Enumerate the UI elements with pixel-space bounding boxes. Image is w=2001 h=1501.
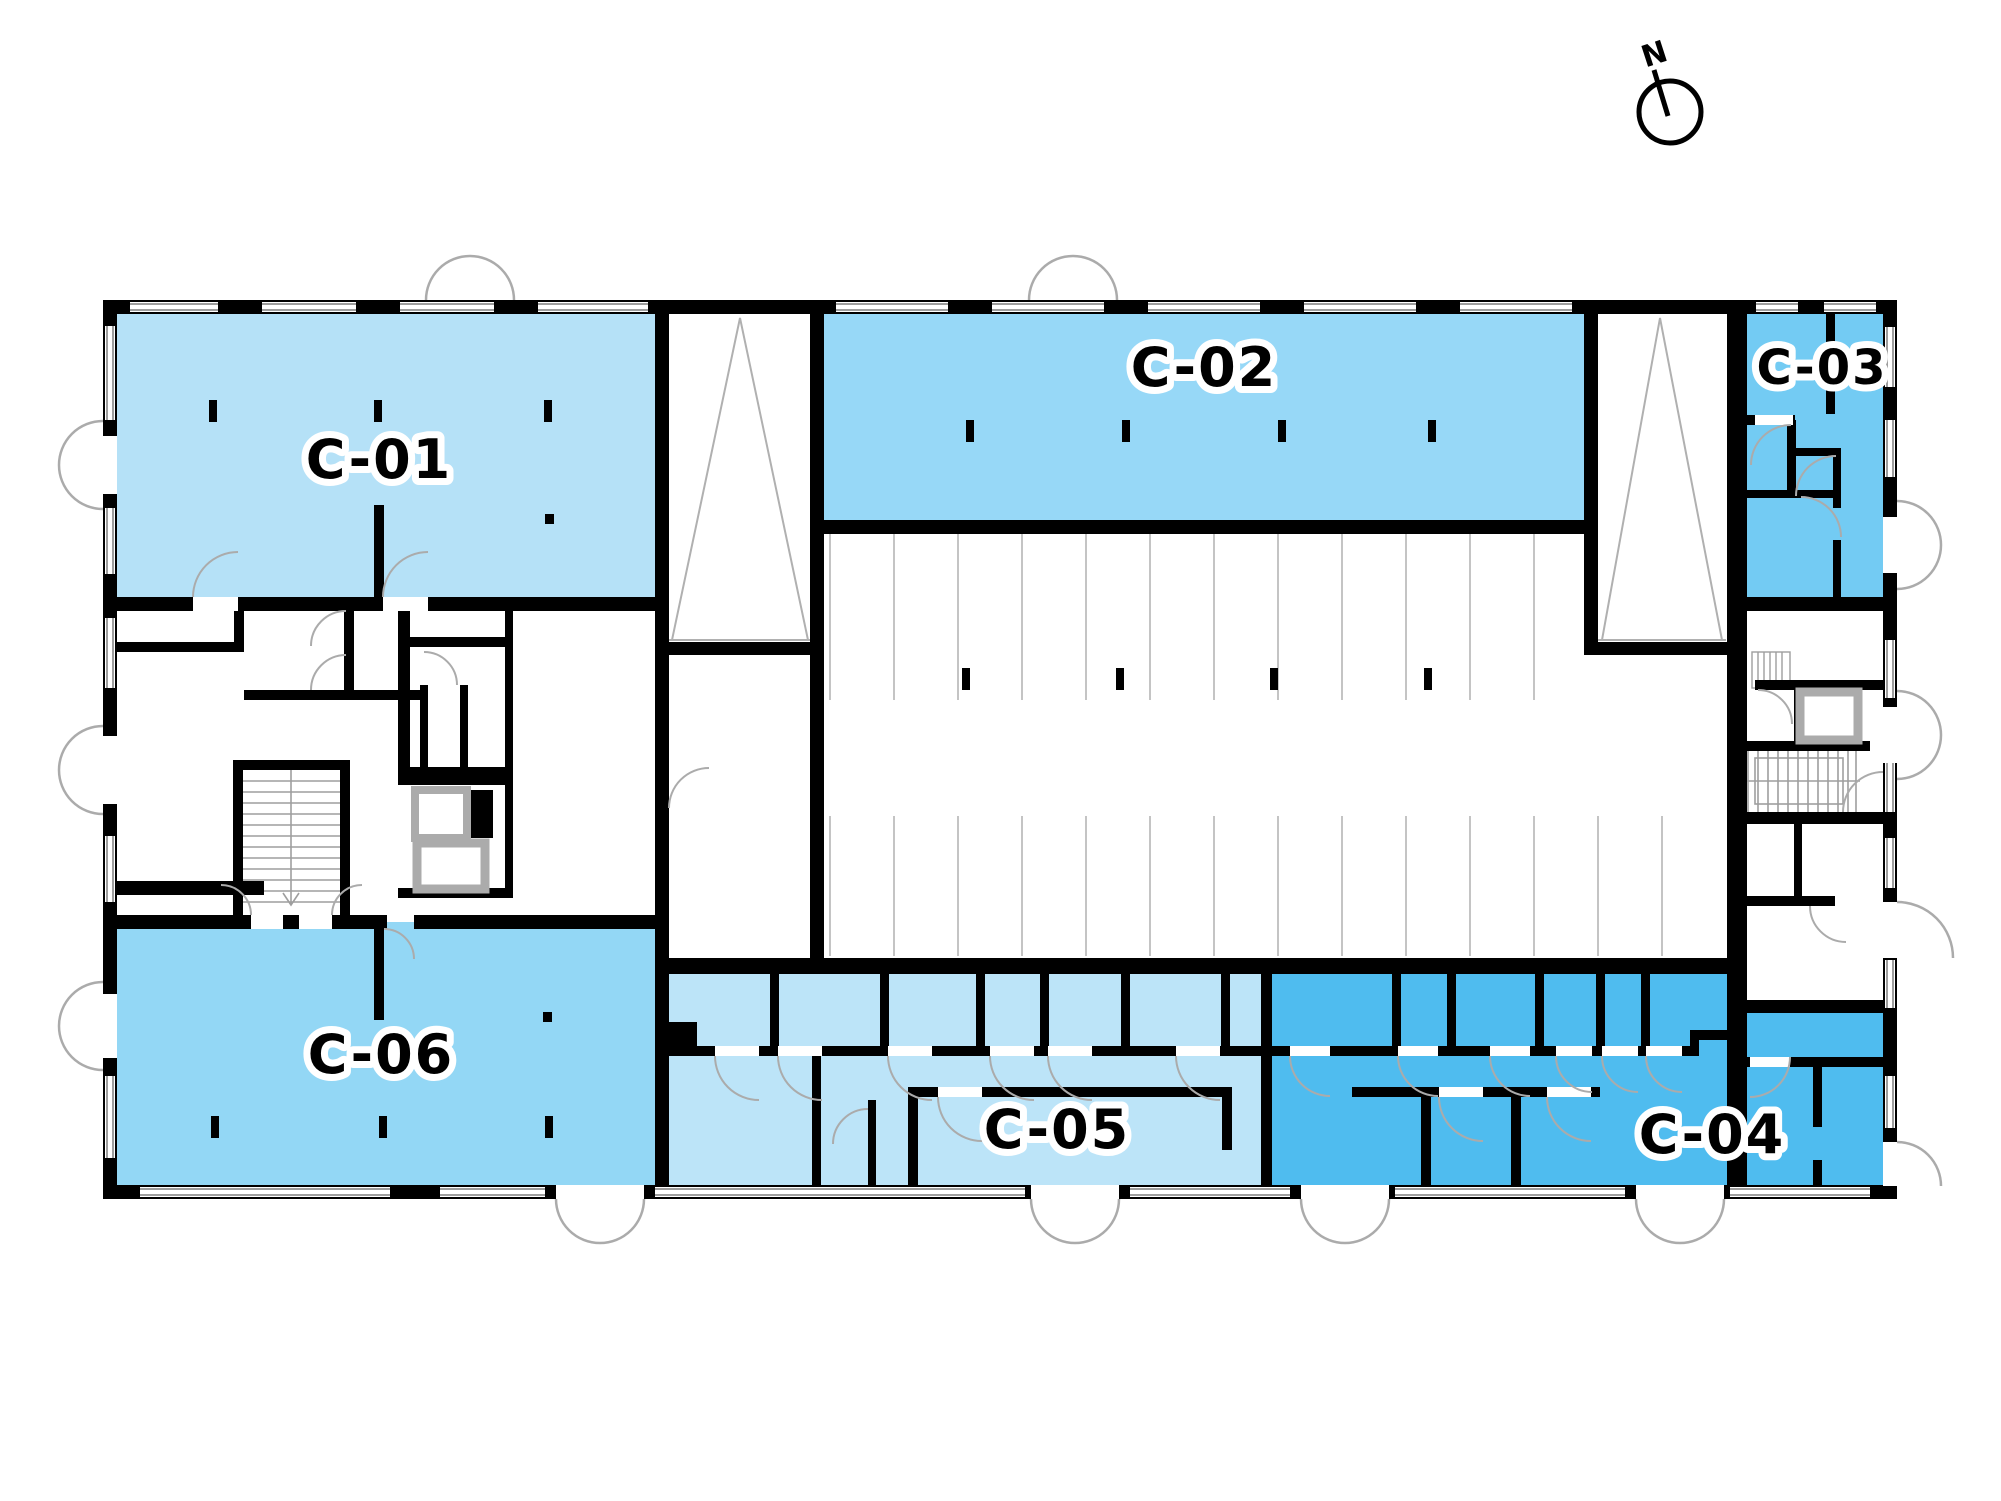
stairwell-right: [1740, 751, 1860, 812]
elevator-right: [1800, 692, 1858, 740]
unit-c05-region[interactable]: [669, 974, 1261, 1185]
ramp-right: [1602, 318, 1722, 640]
wall-c03-bottom: [1727, 597, 1897, 611]
floor-plan-drawing: C-01 C-02 C-03 C-04 C-05 C-06 N: [0, 0, 2001, 1501]
floor-plan-canvas: C-01 C-02 C-03 C-04 C-05 C-06 N: [0, 0, 2001, 1501]
compass-circle: [1639, 81, 1701, 143]
unit-c01-label[interactable]: C-01: [306, 428, 452, 491]
wall-parking-bottom: [655, 958, 1747, 974]
ramp-left: [672, 318, 808, 640]
unit-c04-label[interactable]: C-04: [1639, 1103, 1785, 1166]
elevator-left-2: [417, 843, 485, 889]
unit-c05-fill[interactable]: [669, 974, 1261, 1185]
compass: N: [1637, 34, 1701, 143]
wall-ramp-left-base: [655, 642, 824, 655]
wall-core-left: [655, 300, 669, 1185]
wall-c02-bottom: [810, 520, 1598, 534]
elevator-left-1: [415, 790, 467, 838]
north-needle-icon: [1654, 70, 1668, 116]
unit-c05-label[interactable]: C-05: [984, 1098, 1130, 1161]
parking-stall-lines-bottom: [830, 816, 1662, 956]
unit-c02-label[interactable]: C-02: [1131, 336, 1277, 399]
unit-c03-label[interactable]: C-03: [1756, 340, 1887, 396]
wall-c02-right: [1584, 300, 1598, 655]
wall-parking-left: [810, 300, 824, 972]
wall-ramp-right-base: [1584, 642, 1747, 655]
north-label: N: [1637, 34, 1672, 75]
elevators: [415, 692, 1858, 889]
unit-c06-label[interactable]: C-06: [308, 1023, 454, 1086]
parking-area: [830, 524, 1662, 956]
